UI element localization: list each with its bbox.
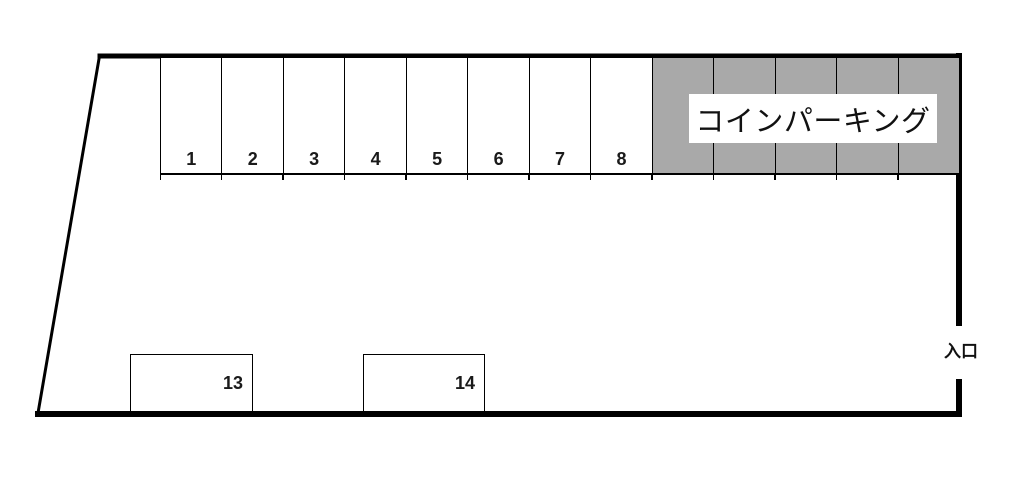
parking-space-7: 7 (529, 58, 590, 173)
parking-space-14: 14 (363, 354, 485, 411)
parking-space-2: 2 (221, 58, 282, 173)
space-number: 2 (248, 150, 258, 173)
coin-parking-label: コインパーキング (689, 94, 937, 143)
space-number: 3 (309, 150, 319, 173)
space-number: 7 (555, 150, 565, 173)
space-number: 1 (186, 150, 196, 173)
space-number: 5 (432, 150, 442, 173)
boundary-left-slant (38, 56, 100, 413)
parking-space-13: 13 (130, 354, 253, 411)
space-number: 13 (223, 374, 243, 392)
space-number: 8 (617, 150, 627, 173)
parking-space-4: 4 (344, 58, 405, 173)
parking-space-6: 6 (467, 58, 528, 173)
parking-space-3: 3 (283, 58, 344, 173)
space-number: 6 (494, 150, 504, 173)
entrance-label: 入口 (928, 341, 994, 363)
space-number: 4 (371, 150, 381, 173)
parking-space-1: 1 (160, 58, 221, 173)
parking-space-8: 8 (590, 58, 651, 173)
parking-space-5: 5 (406, 58, 467, 173)
space-number: 14 (455, 374, 475, 392)
parking-lot-diagram: 1 2 3 4 5 6 7 8 コインパーキング 13 14 (0, 0, 1017, 494)
